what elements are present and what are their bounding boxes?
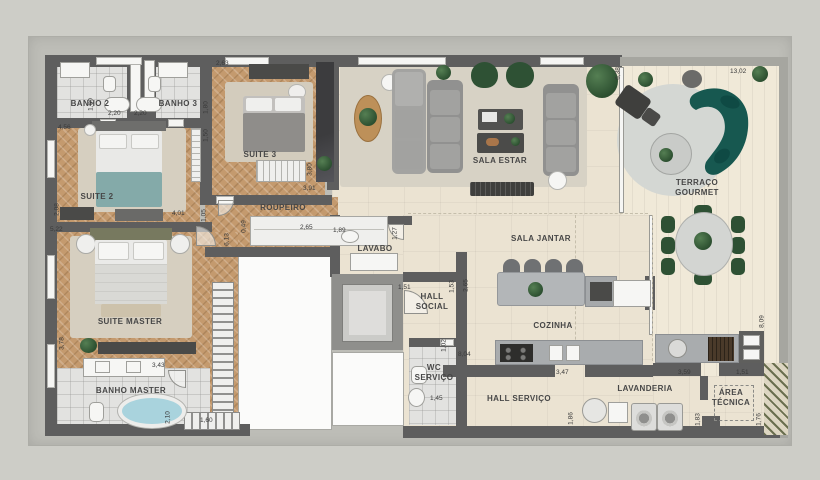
sofa-cushion <box>546 93 576 118</box>
dimension: 2,20 <box>108 110 121 117</box>
plant <box>436 65 451 80</box>
floor-wc-servico <box>409 345 456 425</box>
cabinet-drawer <box>743 349 760 360</box>
dimension: 1,89 <box>333 227 346 234</box>
sink <box>95 361 110 373</box>
room-label-area-tecnica: ÁREA TÉCNICA <box>709 388 753 408</box>
dashed-line <box>652 215 653 361</box>
headboard <box>92 121 166 131</box>
dresser <box>115 209 163 221</box>
room-label-terraco-gourmet: TERRAÇO GOURMET <box>670 178 724 198</box>
vanity-sink <box>60 62 90 78</box>
dimension: 2,65 <box>300 224 313 231</box>
wall <box>585 365 653 377</box>
dimension: 4,56 <box>58 124 71 131</box>
room-label-lavabo: LAVABO <box>358 244 393 254</box>
tray <box>486 138 499 146</box>
washer <box>631 403 657 431</box>
dimension: 1,51 <box>736 369 749 376</box>
plant <box>504 113 515 124</box>
wall <box>653 363 701 376</box>
armchair-green <box>506 62 534 88</box>
wall <box>403 426 780 438</box>
dashed-line <box>408 213 648 214</box>
lavabo-counter <box>350 253 398 271</box>
dining-chair <box>661 237 675 254</box>
dimension: 2,20 <box>134 110 147 117</box>
dimension: 2,08 <box>54 199 61 221</box>
dimension: 1,80 <box>203 97 210 119</box>
dimension: 0,49 <box>241 216 248 238</box>
dresser-tv <box>249 64 309 79</box>
room-label-suite-master: SUITE MASTER <box>98 317 162 327</box>
console <box>98 342 196 354</box>
dimension: 13,02 <box>730 68 746 75</box>
dimension: 2,65 <box>463 275 470 297</box>
plant <box>359 108 377 126</box>
window <box>47 255 55 299</box>
toilet <box>148 76 161 92</box>
linen-closet <box>191 128 201 182</box>
sofa-cushion <box>395 141 423 169</box>
plant-large <box>586 64 618 98</box>
dimension: 6,38 <box>615 63 622 85</box>
sofa-cushion <box>430 117 460 142</box>
room-label-suite-3: SUITE 3 <box>243 150 276 160</box>
dimension: 1,60 <box>200 417 213 424</box>
sofa-cushion <box>546 147 576 172</box>
plant <box>694 232 712 250</box>
sink <box>566 345 580 361</box>
window <box>358 57 446 65</box>
dimension: 1,51 <box>398 284 411 291</box>
dimension: 8,04 <box>458 351 471 358</box>
vanity-sink <box>158 62 188 78</box>
laundry-sink <box>608 402 628 423</box>
dimension: 1,50 <box>203 125 210 147</box>
dimension: 1,05 <box>201 205 208 227</box>
dining-chair <box>661 216 675 233</box>
room-label-wc-servico: WC SERVIÇO <box>412 363 456 383</box>
plant <box>528 282 543 297</box>
side-table-round <box>548 171 567 190</box>
nightstand <box>84 124 96 136</box>
roupeiro-cabinet <box>250 216 388 246</box>
cabinet-drawer <box>743 335 760 346</box>
dimension: 6,13 <box>224 229 231 251</box>
room-label-banho-master: BANHO MASTER <box>96 386 166 396</box>
staircase-vertical-run <box>212 282 234 416</box>
nightstand <box>76 234 96 254</box>
bed-bench <box>101 304 161 317</box>
pillow <box>131 134 159 149</box>
wall <box>443 365 555 377</box>
dimension: 3,91 <box>303 185 316 192</box>
nightstand <box>170 234 190 254</box>
cabinet-shelf-line <box>254 229 384 230</box>
plant <box>752 66 768 82</box>
pillow <box>99 134 127 149</box>
refrigerator <box>613 280 651 307</box>
sofa-cushion <box>430 144 460 169</box>
headboard <box>90 228 172 240</box>
pillow <box>246 98 272 111</box>
room-label-banho-3: BANHO 3 <box>159 99 198 109</box>
dimension: 3,78 <box>59 333 66 355</box>
room-label-cozinha: COZINHA <box>533 321 572 331</box>
elevator-car-inner <box>349 291 386 335</box>
toilet <box>103 76 116 92</box>
dimension: 1,86 <box>568 408 575 430</box>
planter <box>764 363 788 435</box>
sink <box>549 345 563 361</box>
toilet <box>89 402 104 422</box>
desk <box>60 207 94 220</box>
dimension: 3,80 <box>307 159 314 181</box>
curved-sofa-teal <box>688 84 752 176</box>
cooktop-unit <box>590 282 612 301</box>
sofa-cushion <box>546 120 576 145</box>
plant <box>511 137 520 146</box>
wc-sink <box>408 388 425 407</box>
dimension: 1,83 <box>695 409 702 431</box>
dimension: 1,53 <box>449 276 456 298</box>
dining-chair <box>731 237 745 254</box>
room-label-lavanderia: LAVANDERIA <box>617 384 672 394</box>
bathtub-oval <box>118 394 186 428</box>
dining-chair <box>731 216 745 233</box>
terrace-parapet <box>620 57 788 66</box>
sink <box>126 361 141 373</box>
duvet <box>243 113 305 152</box>
room-label-sala-estar: SALA ESTAR <box>473 156 527 166</box>
pillow <box>133 242 164 260</box>
dining-chair <box>661 258 675 275</box>
window <box>47 140 55 178</box>
grill <box>708 337 734 361</box>
dimension: 8,09 <box>759 311 766 333</box>
room-label-hall-servico: HALL SERVIÇO <box>487 394 551 404</box>
dimension: 5,22 <box>50 226 63 233</box>
dimension: 2,63 <box>216 60 229 67</box>
plant <box>659 148 673 162</box>
counter-sink-round <box>668 339 687 358</box>
lobby-outside <box>332 352 404 426</box>
dining-chair <box>731 258 745 275</box>
cooktop <box>500 344 533 362</box>
window <box>540 57 584 65</box>
plant <box>638 72 653 87</box>
tv-console <box>470 182 534 196</box>
window <box>47 344 55 388</box>
duvet <box>95 264 167 304</box>
wall <box>456 252 467 345</box>
room-label-sala-jantar: SALA JANTAR <box>511 234 571 244</box>
floor-plan: BANHO 2 BANHO 3 SUITE 3 SUITE 2 ROUPEIRO… <box>0 0 820 480</box>
dimension: 1,02 <box>441 335 448 357</box>
room-label-roupeiro: ROUPEIRO <box>260 203 306 213</box>
room-label-hall-social: HALL SOCIAL <box>410 292 454 312</box>
pillow <box>275 98 301 111</box>
dimension: 4,01 <box>172 210 185 217</box>
window <box>96 57 142 65</box>
washer <box>657 403 683 431</box>
sofa-cushion <box>395 110 423 138</box>
dimension: 1,76 <box>756 409 763 431</box>
dimension: 3,59 <box>678 369 691 376</box>
laundry-basin <box>582 398 607 423</box>
dimension: 1,45 <box>430 395 443 402</box>
dimension: 2,10 <box>165 407 172 429</box>
door-opening <box>168 119 184 127</box>
dimension: 1,27 <box>392 223 399 245</box>
wardrobe <box>256 160 306 182</box>
dimension: 3,43 <box>152 362 165 369</box>
dimension: 1,60 <box>88 94 95 116</box>
tray <box>482 112 497 122</box>
plant <box>80 338 97 353</box>
wall <box>700 376 708 400</box>
room-label-suite-2: SUITE 2 <box>80 192 113 202</box>
sofa-cushion <box>430 90 460 115</box>
sofa-cushion <box>395 72 423 106</box>
dimension: 3,47 <box>556 369 569 376</box>
armchair-green <box>471 62 498 88</box>
void-area <box>238 252 332 430</box>
pillow <box>98 242 129 260</box>
plant <box>317 156 332 171</box>
